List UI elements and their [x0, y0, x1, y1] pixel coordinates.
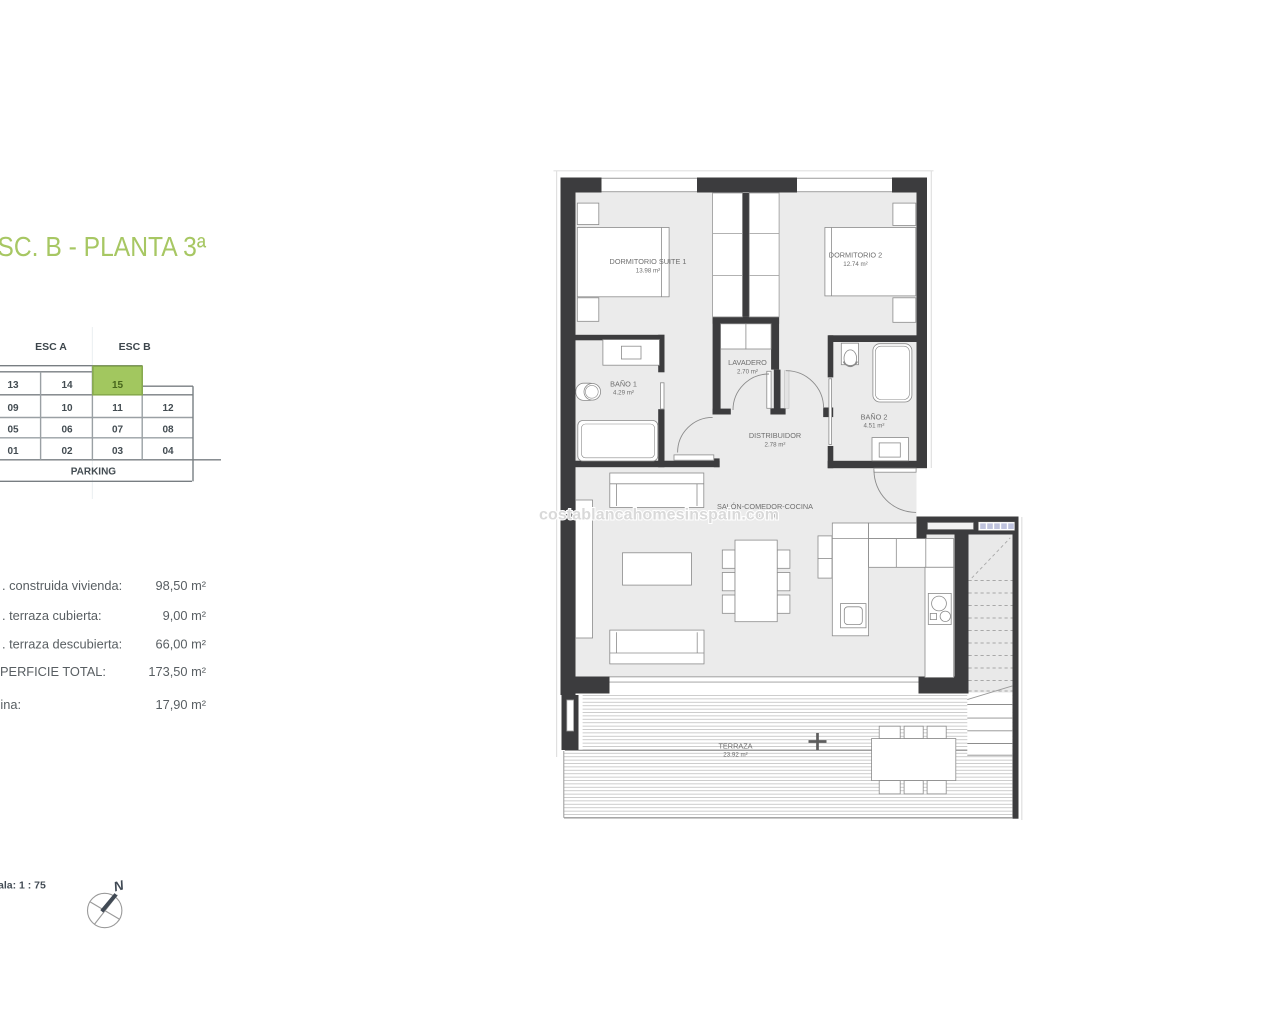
svg-text:costablancahomesinspain.com: costablancahomesinspain.com	[539, 507, 779, 524]
svg-text:173,50 m²: 173,50 m²	[148, 664, 206, 679]
svg-text:2.70 m²: 2.70 m²	[737, 369, 758, 376]
svg-text:4.51 m²: 4.51 m²	[864, 423, 885, 430]
svg-text:ESC. B - PLANTA 3ª: ESC. B - PLANTA 3ª	[0, 231, 207, 262]
svg-text:BAÑO 1: BAÑO 1	[610, 380, 637, 389]
svg-text:DISTRIBUIDOR: DISTRIBUIDOR	[749, 431, 801, 440]
svg-text:03: 03	[112, 446, 124, 457]
svg-text:12: 12	[162, 403, 174, 414]
svg-text:06: 06	[61, 425, 73, 436]
svg-text:ala: 1 : 75: ala: 1 : 75	[0, 880, 46, 892]
svg-text:12.74 m²: 12.74 m²	[843, 261, 867, 268]
svg-text:14: 14	[61, 380, 73, 391]
svg-text:LAVADERO: LAVADERO	[728, 358, 767, 367]
svg-text:02: 02	[61, 446, 73, 457]
svg-text:ESC A: ESC A	[35, 341, 67, 353]
svg-text:04: 04	[162, 446, 174, 457]
svg-text:DORMITORIO 2: DORMITORIO 2	[829, 251, 882, 260]
svg-text:11: 11	[112, 403, 123, 414]
svg-text:9,00 m²: 9,00 m²	[163, 608, 207, 623]
svg-text:. construida vivienda:: . construida vivienda:	[2, 578, 122, 593]
svg-text:10: 10	[61, 403, 73, 414]
svg-text:. terraza cubierta:: . terraza cubierta:	[2, 608, 102, 623]
svg-text:PARKING: PARKING	[71, 467, 117, 478]
svg-text:. terraza descubierta:: . terraza descubierta:	[2, 637, 122, 652]
svg-text:13.98 m²: 13.98 m²	[636, 268, 660, 275]
svg-text:07: 07	[112, 425, 124, 436]
svg-text:PERFICIE TOTAL:: PERFICIE TOTAL:	[0, 664, 106, 679]
svg-text:66,00 m²: 66,00 m²	[155, 637, 206, 652]
svg-text:4.29 m²: 4.29 m²	[613, 390, 634, 397]
svg-text:98,50 m²: 98,50 m²	[155, 578, 206, 593]
svg-text:01: 01	[7, 446, 19, 457]
svg-text:23.92 m²: 23.92 m²	[723, 752, 747, 759]
svg-text:05: 05	[7, 425, 19, 436]
svg-text:TERRAZA: TERRAZA	[718, 742, 752, 751]
svg-text:ESC B: ESC B	[119, 341, 152, 353]
svg-text:DORMITORIO SUITE 1: DORMITORIO SUITE 1	[610, 257, 687, 266]
svg-text:2.78 m²: 2.78 m²	[765, 442, 786, 449]
svg-text:09: 09	[7, 403, 19, 414]
svg-text:cina:: cina:	[0, 697, 21, 712]
svg-text:17,90 m²: 17,90 m²	[155, 697, 206, 712]
svg-text:13: 13	[7, 380, 19, 391]
svg-text:08: 08	[162, 425, 174, 436]
svg-text:BAÑO 2: BAÑO 2	[861, 413, 888, 422]
svg-text:15: 15	[112, 380, 124, 391]
